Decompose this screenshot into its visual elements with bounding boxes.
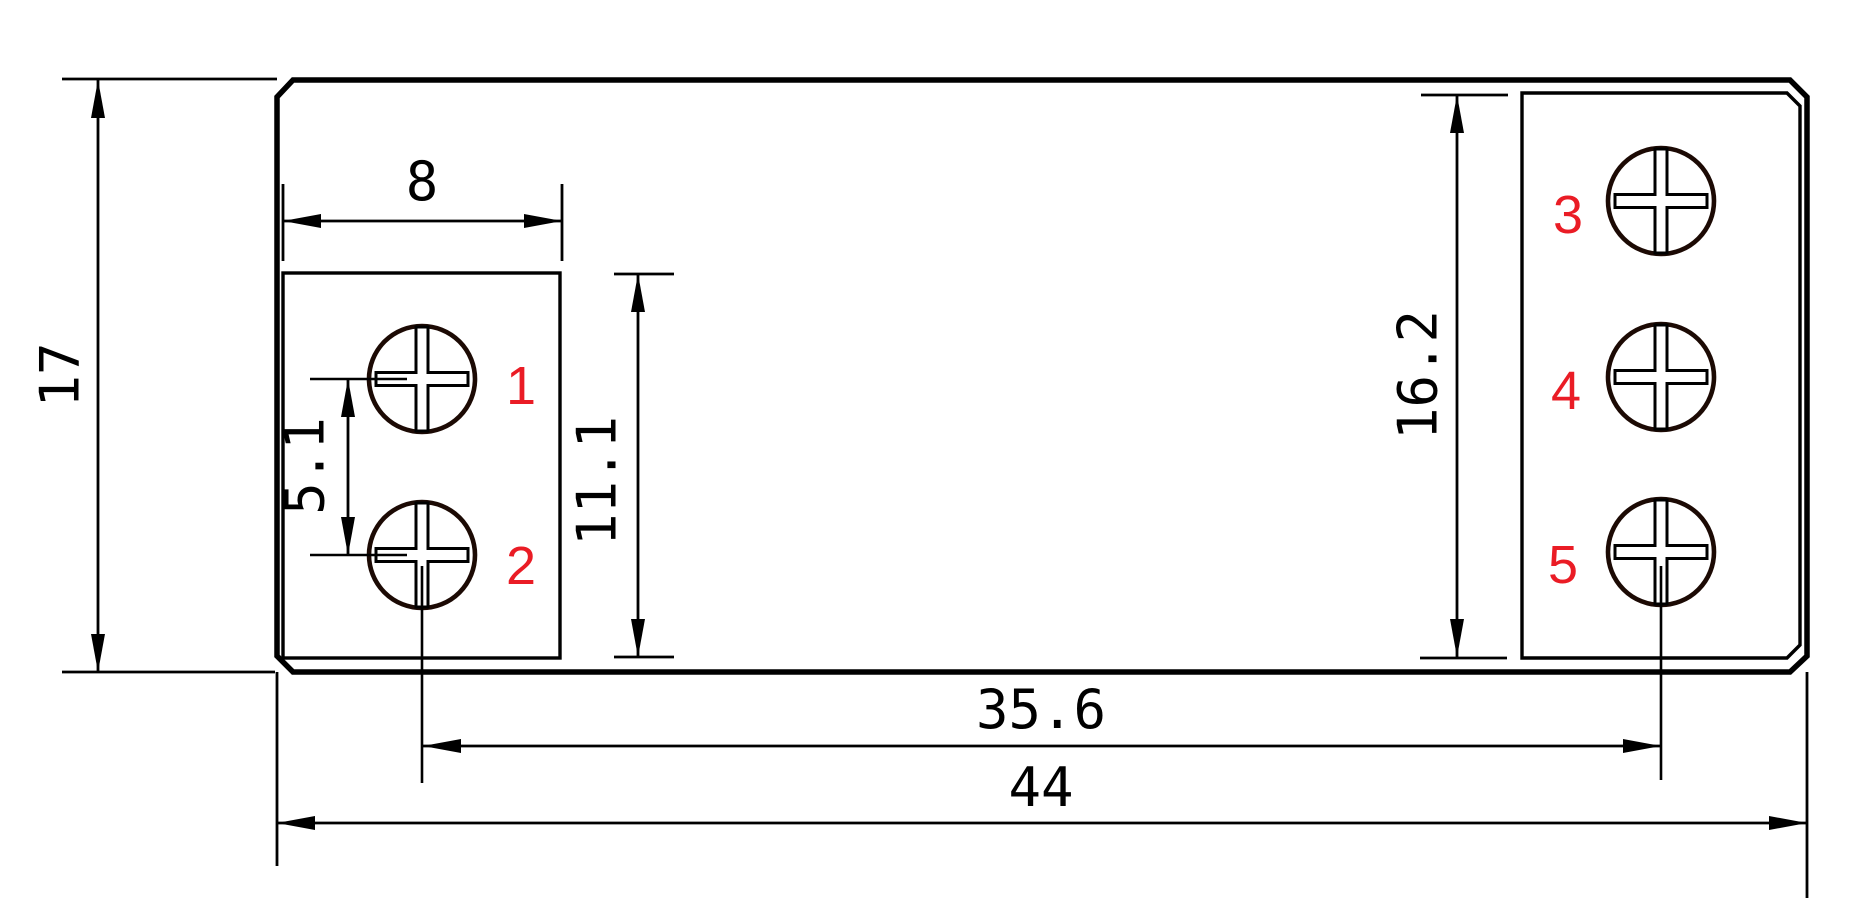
dimension-label-overall-height: 17 — [29, 342, 92, 407]
terminal-number-2: 2 — [506, 536, 536, 596]
dimension-right-block-height: 16.2 — [1387, 95, 1509, 658]
technical-drawing-page: 17 8 5.1 11.1 16.2 35.6 — [0, 0, 1866, 901]
arrowhead — [631, 274, 645, 312]
terminal-number-3: 3 — [1553, 185, 1583, 245]
arrowhead — [1623, 739, 1661, 753]
arrowhead — [277, 816, 315, 830]
dimension-label-left-block-height: 11.1 — [566, 416, 629, 546]
arrowhead — [341, 517, 355, 555]
dimension-overall-height: 17 — [29, 79, 278, 672]
dimension-label-screw-span: 35.6 — [976, 678, 1106, 741]
terminal-number-5: 5 — [1548, 535, 1578, 595]
arrowhead — [631, 619, 645, 657]
arrowhead — [1450, 95, 1464, 133]
screw-terminal-4 — [1608, 324, 1714, 430]
dimension-screw-span: 35.6 — [423, 678, 1661, 753]
arrowhead — [341, 379, 355, 417]
arrowhead — [1450, 619, 1464, 657]
terminal-number-1: 1 — [506, 356, 536, 416]
dimension-label-screw-pitch: 5.1 — [274, 417, 337, 515]
dimension-label-overall-width: 44 — [1008, 756, 1073, 819]
screw-terminal-3 — [1608, 148, 1714, 254]
dimension-label-right-block-height: 16.2 — [1387, 310, 1450, 440]
dimension-label-block-width: 8 — [406, 150, 439, 213]
arrowhead — [91, 80, 105, 118]
terminal-number-4: 4 — [1551, 361, 1581, 421]
arrowhead — [524, 214, 562, 228]
dimension-block-width: 8 — [283, 150, 562, 261]
arrowhead — [91, 634, 105, 672]
arrowhead — [283, 214, 321, 228]
dimension-drawing: 17 8 5.1 11.1 16.2 35.6 — [0, 0, 1866, 901]
dimension-left-block-height: 11.1 — [566, 274, 675, 657]
dimension-screw-pitch: 5.1 — [274, 379, 356, 555]
arrowhead — [423, 739, 461, 753]
arrowhead — [1769, 816, 1807, 830]
